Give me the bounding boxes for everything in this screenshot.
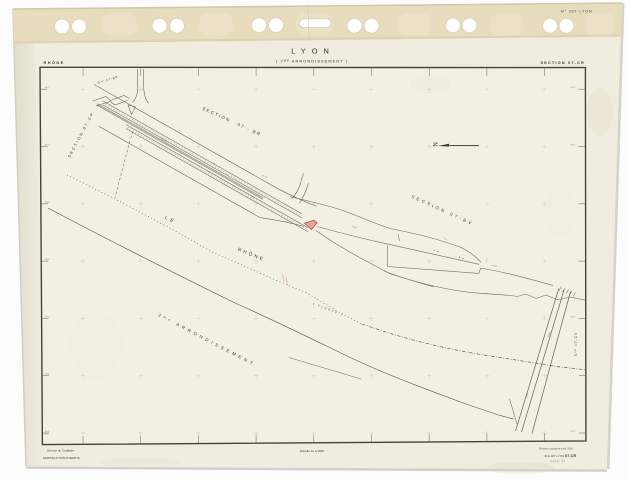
- svg-text:N: N: [431, 142, 437, 146]
- svg-text:SECTION 07-CR: SECTION 07-CR: [540, 61, 585, 65]
- svg-text:LYON: LYON: [291, 47, 335, 56]
- svg-text:Service du Cadastre: Service du Cadastre: [47, 449, 75, 453]
- svg-text:46 E 387 LYON 07-CR: 46 E 387 LYON 07-CR: [544, 453, 577, 458]
- svg-text:Échelle de 1/1000: Échelle de 1/1000: [300, 448, 324, 453]
- svg-text:349 P. 33: 349 P. 33: [550, 459, 565, 464]
- svg-text:Révision cadastrale pour 19: Révision cadastrale pour 1966: [539, 448, 573, 451]
- svg-text:RHÔNE: RHÔNE: [44, 60, 65, 65]
- svg-text:N° 387 LYON: N° 387 LYON: [561, 10, 592, 14]
- svg-text:REPRODUCTION INTERDITE: REPRODUCTION INTERDITE: [43, 456, 80, 460]
